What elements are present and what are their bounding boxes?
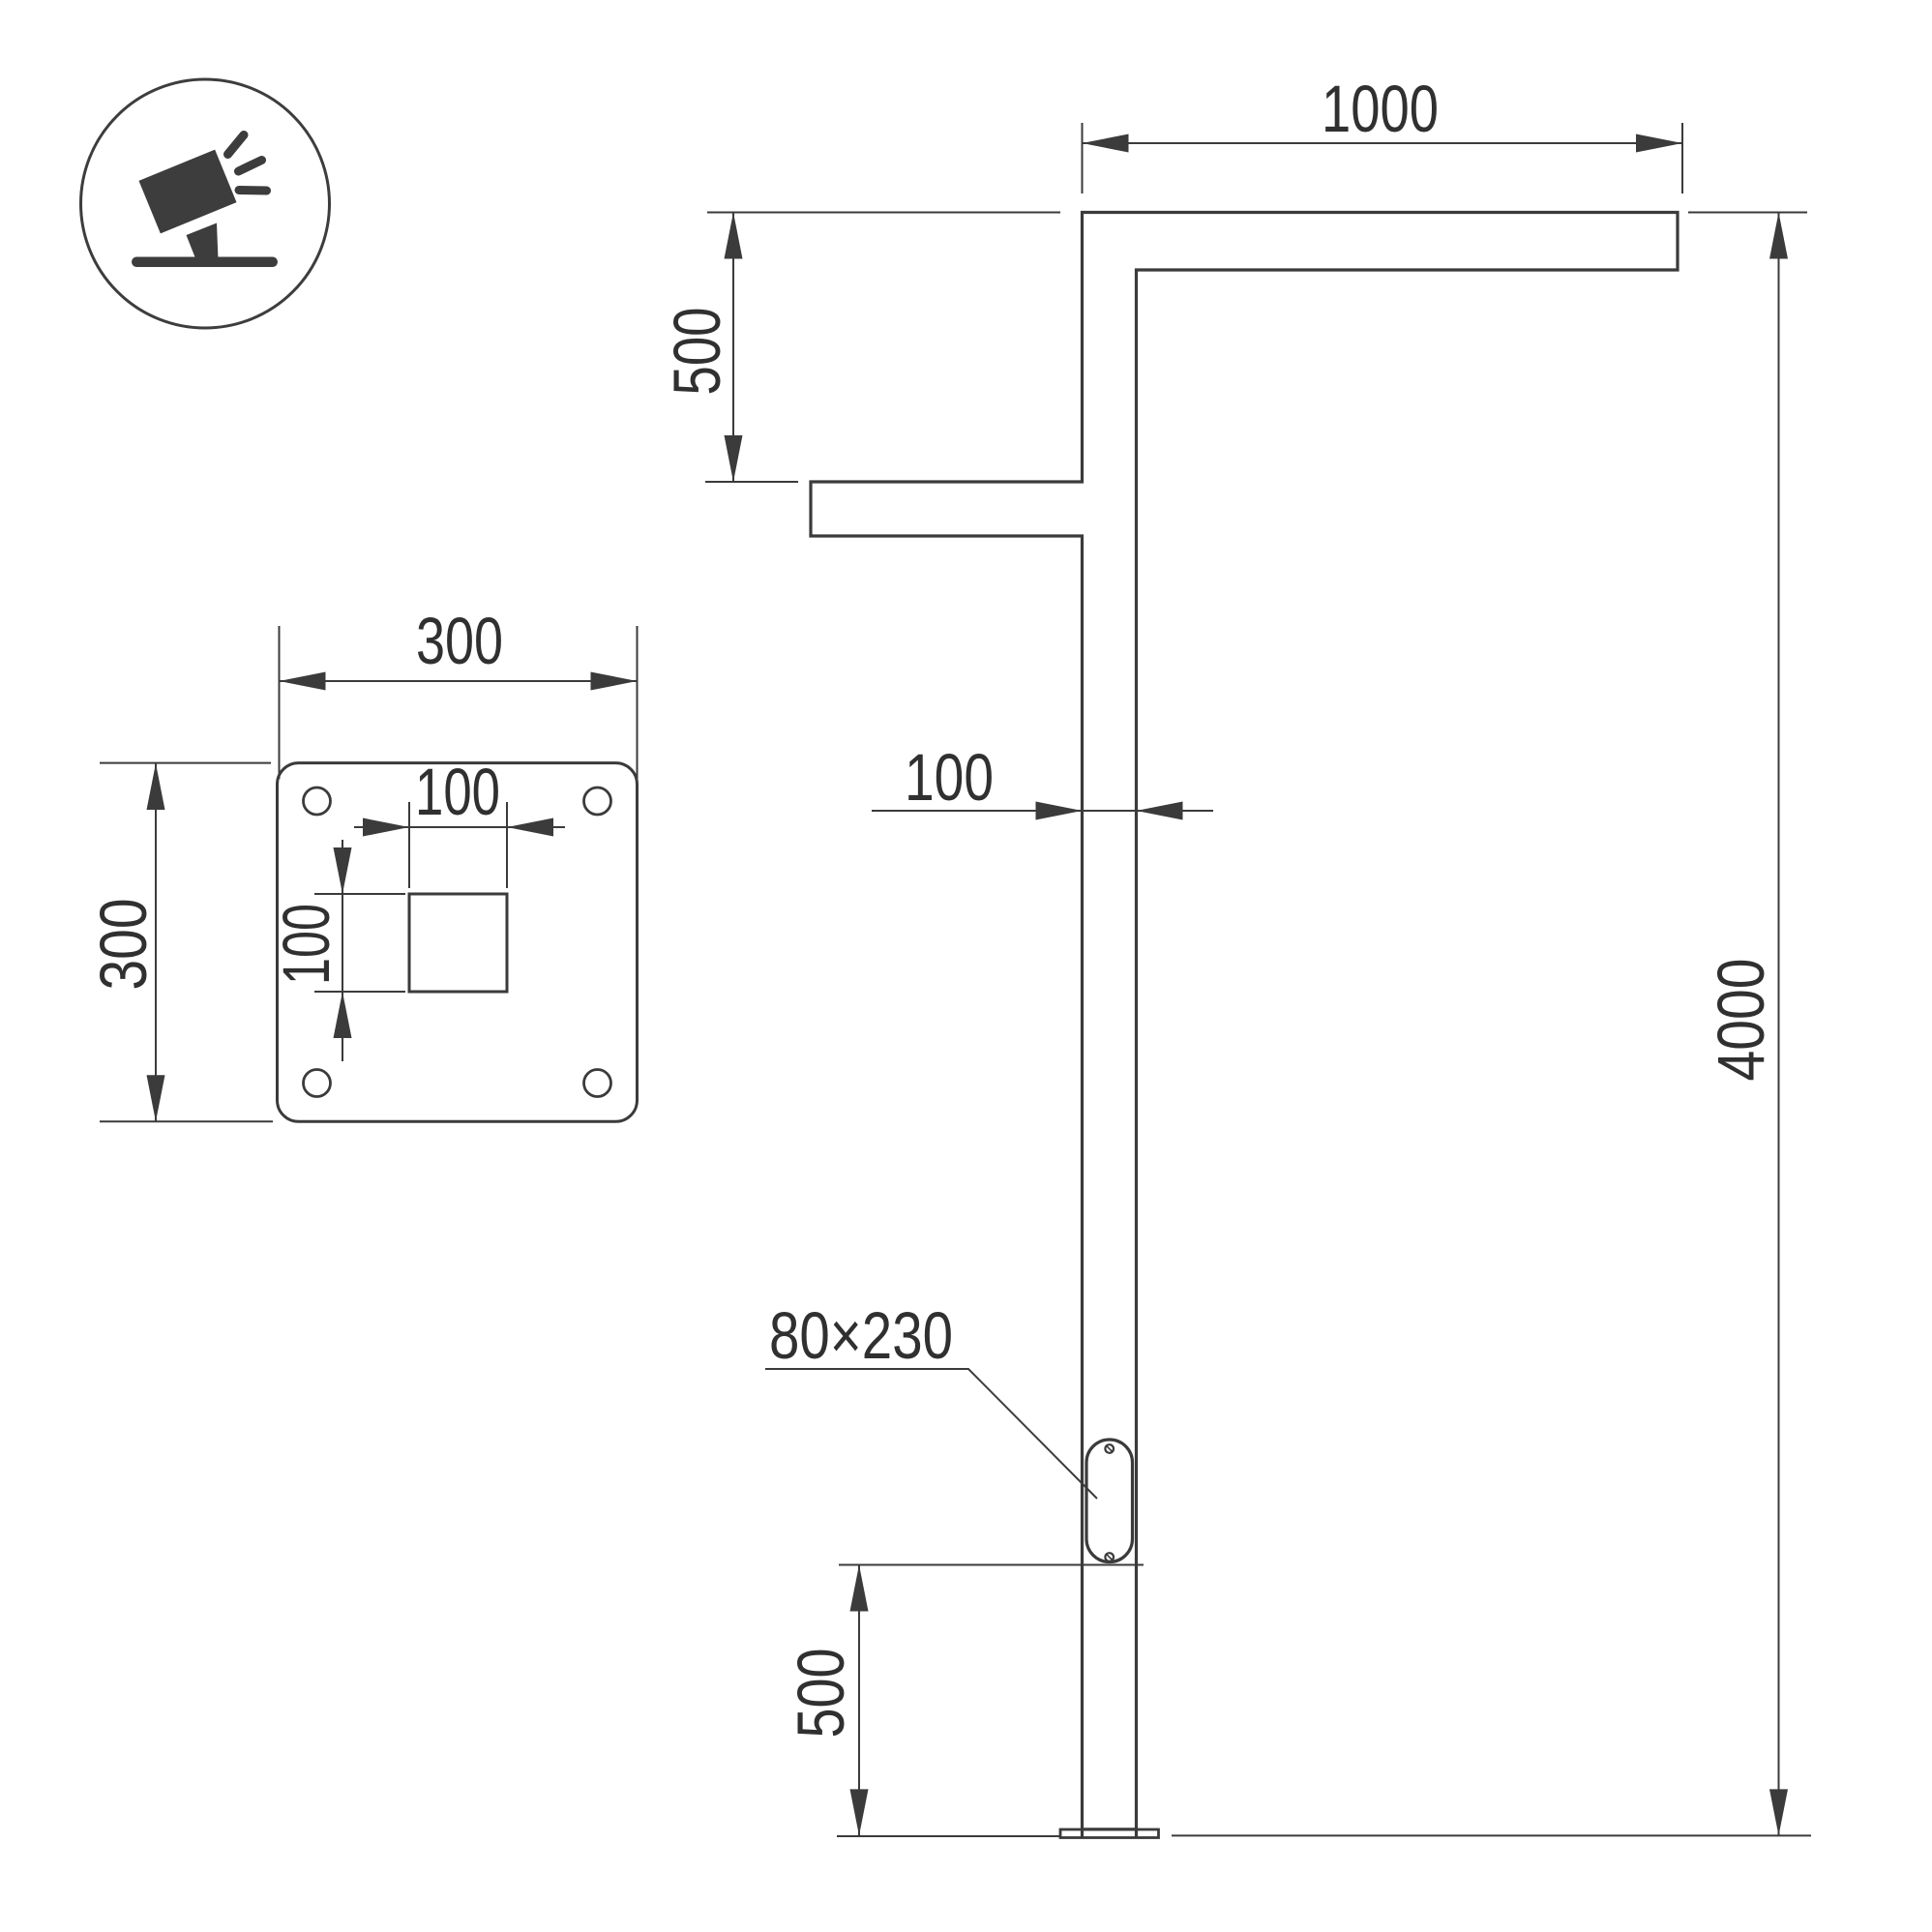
svg-text:500: 500: [660, 308, 734, 396]
svg-text:500: 500: [784, 1649, 858, 1739]
svg-text:100: 100: [905, 740, 994, 815]
svg-text:80×230: 80×230: [769, 1298, 953, 1373]
svg-text:4000: 4000: [1704, 959, 1778, 1082]
svg-text:300: 300: [86, 899, 161, 991]
svg-text:100: 100: [269, 904, 343, 985]
svg-text:300: 300: [416, 604, 503, 678]
svg-text:100: 100: [415, 755, 500, 829]
svg-text:1000: 1000: [1322, 72, 1439, 146]
